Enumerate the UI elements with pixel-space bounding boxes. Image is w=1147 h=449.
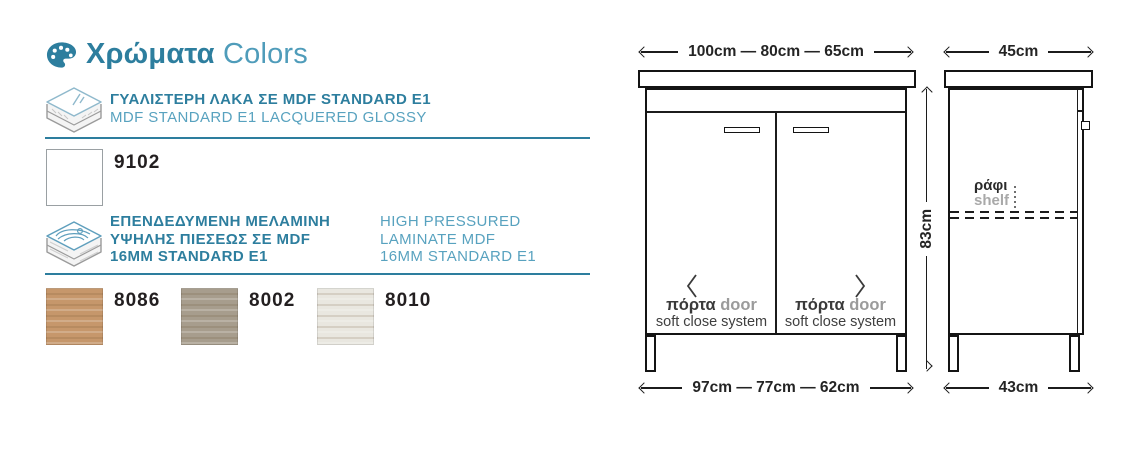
material-2-text-english: HIGH PRESSURED LAMINATE MDF 16MM STANDAR… (380, 213, 536, 266)
swatch-8010 (317, 288, 374, 345)
front-cabinet-body: πόρτα door soft close system πόρτα door … (645, 88, 907, 335)
side-bottom-dimension: 43cm (945, 380, 1092, 396)
arrow-left-icon (943, 382, 954, 393)
door-label-english: door (720, 296, 757, 314)
door-label-english: door (849, 296, 886, 314)
front-width-label: 100cm — 80cm — 65cm (678, 43, 874, 61)
page-title-english: Colors (223, 38, 308, 70)
shelf-label-english: shelf (974, 193, 1009, 208)
front-countertop (638, 70, 916, 88)
arrow-right-icon (1082, 46, 1093, 57)
swatch-9102 (46, 149, 103, 206)
material-2-greek-line2: ΥΨΗΛΗΣ ΠΙΕΣΕΩΣ ΣΕ MDF (110, 231, 330, 249)
side-width-dimension: 45cm (945, 44, 1092, 60)
dimension-line (926, 89, 928, 202)
lacquer-stack-icon (44, 86, 104, 138)
arrow-down-icon (921, 360, 932, 371)
swatch-code-8086: 8086 (114, 290, 160, 312)
page-title: Χρώματα Colors (86, 38, 308, 71)
swatch-code-9102: 9102 (114, 152, 160, 174)
front-bottom-dimension: 97cm — 77cm — 62cm (640, 380, 912, 396)
arrow-left-icon (638, 46, 649, 57)
side-width-label: 45cm (989, 43, 1049, 61)
shelf-dashed-line-2 (950, 217, 1078, 219)
arrow-up-icon (921, 86, 932, 97)
front-bottom-label: 97cm — 77cm — 62cm (682, 379, 869, 397)
right-door-label: πόρτα door soft close system (776, 297, 905, 331)
side-cabinet-body: ράφι shelf (948, 88, 1084, 335)
shelf-dashed-line-1 (950, 211, 1078, 213)
side-front-leg (948, 335, 959, 372)
shelf-label-greek: ράφι (974, 178, 1009, 193)
material-2-greek-line3: 16MM STANDARD E1 (110, 248, 330, 266)
right-door-handle (793, 127, 829, 133)
arrow-left-icon (943, 46, 954, 57)
side-bottom-label: 43cm (989, 379, 1049, 397)
arrow-right-icon (902, 382, 913, 393)
material-2-greek-line1: ΕΠΕΝΔΕΔΥΜΕΝΗ ΜΕΛΑΜΙΝΗ (110, 213, 330, 231)
material-2-english-line1: HIGH PRESSURED (380, 213, 536, 231)
divider-rule-2 (45, 273, 590, 275)
front-height-label: 83cm (918, 202, 936, 256)
front-width-dimension: 100cm — 80cm — 65cm (640, 44, 912, 60)
material-2-english-line3: 16MM STANDARD E1 (380, 248, 536, 266)
material-1-text: ΓΥΑΛΙΣΤΕΡΗ ΛΑΚΑ ΣΕ MDF STANDARD E1 MDF S… (110, 91, 431, 126)
swatch-8002 (181, 288, 238, 345)
left-door-label: πόρτα door soft close system (647, 297, 776, 331)
material-1-title-greek: ΓΥΑΛΙΣΤΕΡΗ ΛΑΚΑ ΣΕ MDF STANDARD E1 (110, 91, 431, 109)
door-label-greek: πόρτα (666, 296, 716, 314)
catalog-page: Χρώματα Colors ΓΥΑΛΙΣΤΕΡΗ ΛΑΚΑ ΣΕ MDF ST… (0, 0, 1147, 449)
material-2-text-greek: ΕΠΕΝΔΕΔΥΜΕΝΗ ΜΕΛΑΜΙΝΗ ΥΨΗΛΗΣ ΠΙΕΣΕΩΣ ΣΕ … (110, 213, 330, 266)
divider-rule-1 (45, 137, 590, 139)
door-label-sub: soft close system (776, 314, 905, 331)
colors-header: Χρώματα Colors (46, 38, 308, 71)
page-title-greek: Χρώματα (86, 38, 215, 70)
swatch-code-8010: 8010 (385, 290, 431, 312)
arrow-left-icon (638, 382, 649, 393)
palette-icon (46, 41, 77, 69)
swatch-8086 (46, 288, 103, 345)
front-right-leg (896, 335, 907, 372)
side-door-top-tick (1078, 110, 1082, 112)
shelf-label: ράφι shelf (974, 178, 1009, 208)
arrow-right-icon (1082, 382, 1093, 393)
door-label-sub: soft close system (647, 314, 776, 331)
wood-stack-icon (44, 220, 104, 272)
arrow-right-icon (902, 46, 913, 57)
side-door-handle (1081, 121, 1090, 130)
dimension-line (926, 256, 928, 369)
material-2-english-line2: LAMINATE MDF (380, 231, 536, 249)
swatch-code-8002: 8002 (249, 290, 295, 312)
front-height-dimension: 83cm (919, 88, 934, 370)
left-door-handle (724, 127, 760, 133)
door-label-greek: πόρτα (795, 296, 845, 314)
material-1-title-english: MDF STANDARD E1 LACQUERED GLOSSY (110, 109, 431, 127)
side-back-leg (1069, 335, 1080, 372)
front-left-leg (645, 335, 656, 372)
side-countertop (944, 70, 1093, 88)
